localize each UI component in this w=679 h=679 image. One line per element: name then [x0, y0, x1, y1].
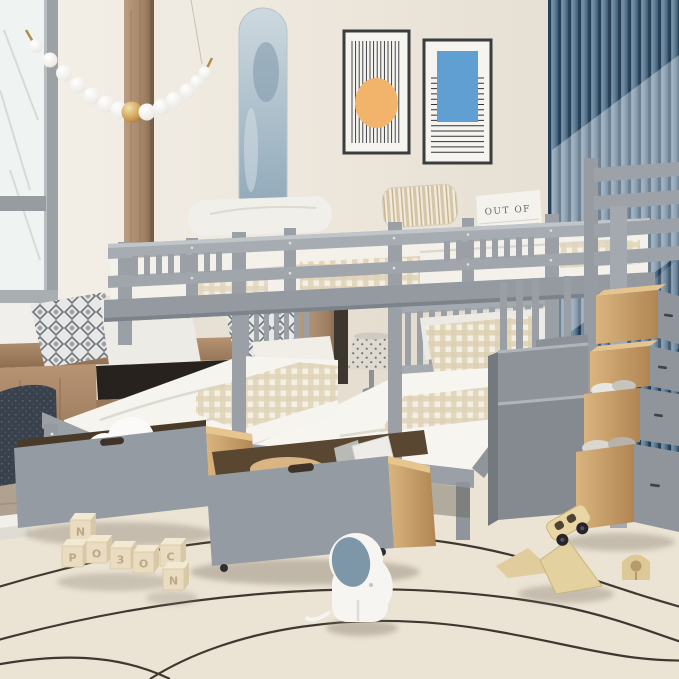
caster-wheel	[220, 564, 228, 572]
window	[0, 0, 60, 347]
window-sill	[0, 290, 58, 303]
window-frame-horizontal	[0, 196, 46, 211]
svg-text:N: N	[169, 575, 178, 588]
poster-blue-rectangle	[437, 51, 478, 122]
mirror-reflection-dark	[253, 42, 279, 102]
svg-text:3: 3	[117, 554, 125, 567]
block: N	[163, 562, 189, 590]
arched-mirror	[239, 8, 287, 220]
svg-text:N: N	[76, 526, 85, 539]
block: 3	[110, 541, 136, 569]
loft-white-pillow	[187, 195, 332, 236]
wood-elephant-figurine	[622, 555, 650, 581]
block: P	[62, 539, 88, 567]
wall-art-right	[424, 40, 491, 163]
room-scene: OUT OF	[0, 0, 679, 679]
wall-art-left	[344, 31, 409, 153]
lamp-stem	[369, 370, 374, 390]
block: C	[160, 538, 186, 566]
svg-text:C: C	[166, 551, 174, 564]
plush-eye	[369, 583, 373, 587]
staircase-drawer-1	[596, 284, 679, 344]
block: O	[133, 545, 159, 573]
block: O	[86, 535, 112, 563]
svg-text:O: O	[92, 548, 101, 561]
stair-step-lower	[498, 396, 588, 520]
kids-room-photo: OUT OF	[0, 0, 679, 679]
poster-orange-circle	[355, 78, 398, 128]
svg-text:P: P	[68, 552, 76, 565]
svg-text:O: O	[139, 558, 148, 571]
mirror-highlight	[244, 108, 258, 192]
striped-pillow	[382, 183, 459, 228]
